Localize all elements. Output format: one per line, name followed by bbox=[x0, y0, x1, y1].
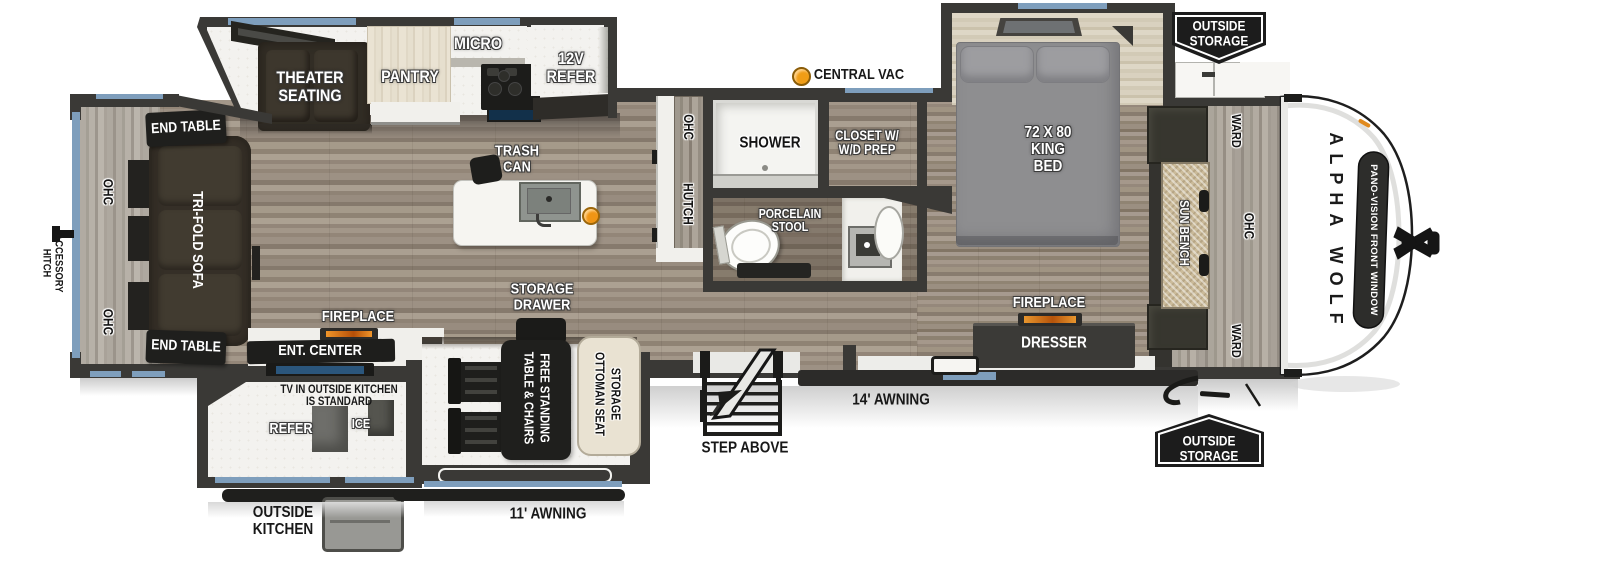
svg-text:PANO-VISION FRONT WINDOW: PANO-VISION FRONT WINDOW bbox=[1368, 164, 1379, 315]
svg-text:ALPHA WOLF: ALPHA WOLF bbox=[1326, 132, 1346, 331]
